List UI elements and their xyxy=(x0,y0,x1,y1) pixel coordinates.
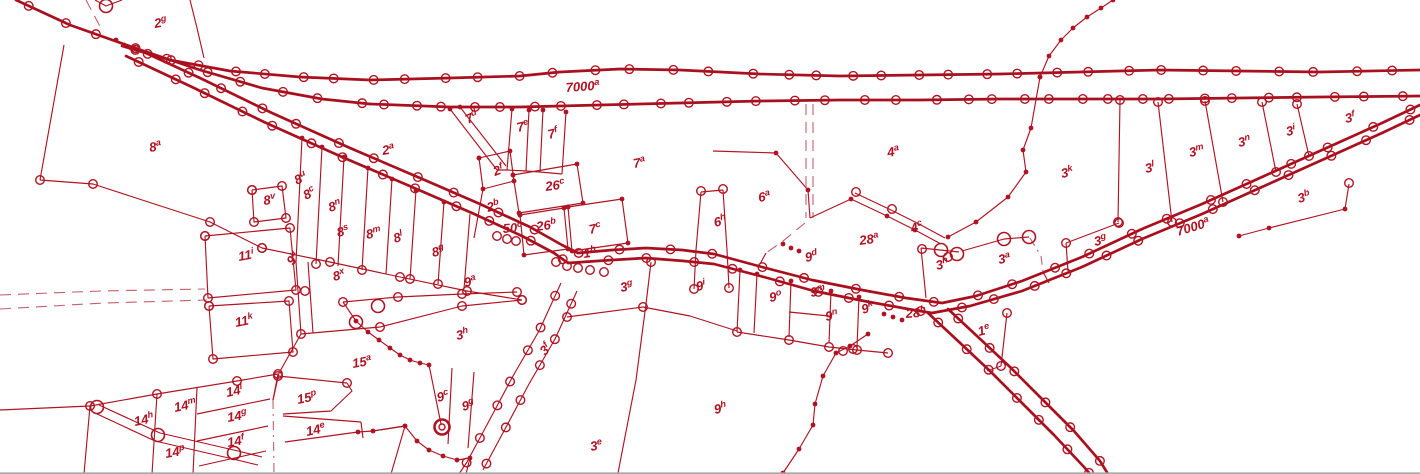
boundary-dot xyxy=(354,319,359,324)
boundary-dot xyxy=(789,246,794,251)
parcel-label-9a: 9a xyxy=(462,272,477,290)
parcel-boundary-line xyxy=(754,274,757,333)
parcel-boundary-line xyxy=(1118,100,1120,222)
parcel-boundary-line xyxy=(301,300,522,334)
parcel-label-9o: 9o xyxy=(768,287,784,305)
parcel-boundary-line xyxy=(0,289,205,295)
boundary-dot xyxy=(408,358,413,363)
boundary-dot xyxy=(448,107,453,112)
parcel-boundary-line xyxy=(152,394,157,474)
survey-point-marker xyxy=(852,188,861,197)
parcel-label-8x: 8x xyxy=(331,265,348,284)
parcel-label-14m: 14m xyxy=(172,395,197,415)
parcel-boundary-line xyxy=(783,334,868,473)
main-road-north-edge xyxy=(135,48,1420,303)
parcel-boundary-line xyxy=(776,153,810,218)
boundary-dot xyxy=(866,332,871,337)
parcel-boundary-line xyxy=(948,77,1040,237)
parcel-boundary-line xyxy=(361,422,363,438)
parcel-label-14g: 14g xyxy=(226,406,249,425)
parcel-boundary-line xyxy=(1297,104,1309,156)
parcel-boundary-line xyxy=(723,190,729,288)
parcel-label-3e: 3e xyxy=(589,436,604,454)
boundary-dot xyxy=(813,402,818,407)
parcel-label-7c: 7c xyxy=(587,219,602,237)
cadastral-map: 2g8a2a7d7e7f7000a7a4a3k3l3m3n3i3f8v8u8c8… xyxy=(0,0,1420,474)
parcel-label-15a: 15a xyxy=(351,352,373,371)
parcel-label-8l: 8l xyxy=(391,227,406,245)
parcel-label-9m: 9m xyxy=(809,282,827,300)
cadastral-map-canvas: 2g8a2a7d7e7f7000a7a4a3k3l3m3n3i3f8v8u8c8… xyxy=(0,0,1420,474)
parcel-boundary-line xyxy=(1001,313,1007,366)
boundary-dot xyxy=(797,447,802,452)
parcel-label-8a: 8a xyxy=(148,137,163,155)
parcel-boundary-line xyxy=(296,262,301,334)
survey-point-marker xyxy=(512,237,521,246)
parcel-label-11i: 11i xyxy=(237,245,256,264)
parcel-label-3h: 3h xyxy=(454,325,470,343)
boundary-dot xyxy=(1024,170,1029,175)
boundary-dot xyxy=(481,187,486,192)
boundary-dot xyxy=(1085,15,1090,20)
parcel-boundary-line xyxy=(373,426,405,431)
parcel-boundary-line xyxy=(338,157,344,266)
boundary-dot xyxy=(441,454,446,459)
boundary-dot xyxy=(900,318,905,323)
survey-point-marker xyxy=(600,268,609,277)
boundary-dot xyxy=(458,105,463,110)
parcel-boundary-line xyxy=(283,383,352,414)
parcel-label-15p: 15p xyxy=(295,387,318,407)
parcel-label-8s: 8s xyxy=(335,221,351,239)
parcel-label-9c: 9c xyxy=(435,386,451,404)
parcel-label-3i: 3i xyxy=(1284,121,1297,139)
parcel-boundary-line xyxy=(308,262,313,333)
parcel-boundary-line xyxy=(296,138,302,262)
parcel-boundary-line xyxy=(694,192,701,289)
parcel-label-14p: 14p xyxy=(164,442,187,461)
parcel-boundary-line xyxy=(766,223,805,253)
boundary-dot xyxy=(1267,226,1272,231)
road-edge-top xyxy=(122,46,1420,80)
parcel-label-2a: 2a xyxy=(380,140,396,158)
boundary-dot xyxy=(377,338,382,343)
survey-point-marker xyxy=(503,235,512,244)
boundary-dot xyxy=(620,197,625,202)
boundary-dot xyxy=(566,205,571,210)
well-symbol-inner xyxy=(439,424,445,430)
parcel-boundary-line xyxy=(713,151,776,153)
parcel-boundary-line xyxy=(40,45,64,180)
parcel-label-9h: 9h xyxy=(712,399,728,417)
parcel-label-8m: 8m xyxy=(364,223,382,242)
parcel-label-28b: 28b xyxy=(904,304,927,321)
boundary-dot xyxy=(882,312,887,317)
parcel-label-3a: 3a xyxy=(997,249,1012,267)
boundary-dot xyxy=(477,156,482,161)
survey-point-marker xyxy=(951,248,964,261)
boundary-dot xyxy=(366,330,371,335)
boundary-dot xyxy=(366,166,371,171)
parcel-label-14e: 14e xyxy=(304,419,326,439)
parcel-label-7000a: 7000a xyxy=(565,77,600,95)
parcel-boundary-line xyxy=(84,406,90,474)
parcel-label-6a: 6a xyxy=(757,187,772,205)
boundary-dot xyxy=(511,173,516,178)
parcel-boundary-line xyxy=(40,180,262,248)
branch-road-edge xyxy=(928,313,1090,474)
boundary-dot xyxy=(388,346,393,351)
parcel-boundary-line xyxy=(540,110,543,172)
boundary-dot xyxy=(891,315,896,320)
parcel-boundary-line xyxy=(737,270,740,332)
parcel-label-14l: 14l xyxy=(224,381,244,400)
boundary-dot xyxy=(415,439,420,444)
survey-point-marker xyxy=(493,232,502,241)
boundary-dot xyxy=(508,149,513,154)
survey-point-marker xyxy=(372,300,385,313)
boundary-dot xyxy=(1006,195,1011,200)
boundary-dot xyxy=(418,361,423,366)
parcel-boundary-line xyxy=(789,312,829,316)
boundary-dot xyxy=(946,235,951,240)
parcel-label-8v: 8v xyxy=(262,190,277,208)
boundary-dot xyxy=(626,241,631,246)
parcel-boundary-line xyxy=(190,0,204,58)
parcel-boundary-line xyxy=(1205,101,1223,202)
parcel-boundary-line xyxy=(810,199,851,218)
parcel-boundary-line xyxy=(386,179,392,274)
parcel-label-28a: 28a xyxy=(857,229,880,248)
parcel-label-7a: 7a xyxy=(632,153,647,171)
boundary-dot xyxy=(806,188,811,193)
parcel-label-3n: 3n xyxy=(1236,132,1252,150)
boundary-dot xyxy=(403,424,408,429)
parcel-boundary-line xyxy=(857,297,859,347)
boundary-dot xyxy=(1021,148,1026,153)
boundary-dot xyxy=(821,374,826,379)
parcel-label-14h: 14h xyxy=(132,409,155,429)
parcel-boundary-line xyxy=(567,307,643,317)
boundary-dot xyxy=(789,279,794,284)
boundary-dot xyxy=(300,136,305,141)
parcel-label-3m: 3m xyxy=(1187,141,1205,160)
survey-point-marker xyxy=(91,401,104,414)
boundary-dot xyxy=(581,201,586,206)
boundary-dot xyxy=(518,213,523,218)
parcel-label-2g: 2g xyxy=(152,13,169,31)
parcel-boundary-line xyxy=(562,112,566,174)
boundary-dot xyxy=(564,110,569,115)
parcel-boundary-line xyxy=(273,400,274,474)
parcel-label-11k: 11k xyxy=(233,310,255,330)
parcel-boundary-line xyxy=(0,406,90,410)
parcel-boundary-line xyxy=(1158,102,1172,222)
parcel-boundary-line xyxy=(459,283,561,474)
parcel-label-1b: 1b xyxy=(582,243,597,261)
parcel-boundary-line xyxy=(1262,102,1276,172)
parcel-boundary-line xyxy=(86,0,103,32)
parcel-label-4a: 4a xyxy=(885,142,901,160)
boundary-dot xyxy=(1029,126,1034,131)
parcel-label-3g: 3g xyxy=(619,277,635,295)
parcel-label-26b: 26b xyxy=(534,215,557,234)
boundary-dot xyxy=(541,108,546,113)
parcel-boundary-line xyxy=(643,307,737,331)
boundary-dot xyxy=(974,220,979,225)
boundary-dot xyxy=(371,429,376,434)
parcel-label-8g: 8g xyxy=(430,241,447,260)
boundary-dot xyxy=(857,295,862,300)
parcel-boundary-line xyxy=(343,302,356,321)
boundary-dot xyxy=(1237,234,1242,239)
parcel-boundary-line xyxy=(362,168,368,270)
boundary-dot xyxy=(1047,54,1052,59)
boundary-dot xyxy=(885,214,890,219)
survey-point-marker xyxy=(574,264,583,273)
boundary-dot xyxy=(781,242,786,247)
parcel-label-1e: 1e xyxy=(976,320,992,338)
boundary-dot xyxy=(510,107,515,112)
parcel-boundary-line xyxy=(1066,223,1119,243)
parcel-boundary-line xyxy=(410,190,416,279)
boundary-dot xyxy=(755,272,760,277)
boundary-dot xyxy=(1111,0,1116,2)
parcel-boundary-line xyxy=(405,426,470,460)
boundary-dot xyxy=(427,363,432,368)
boundary-dot xyxy=(829,289,834,294)
parcel-label-3b: 3b xyxy=(1295,187,1312,206)
boundary-dot xyxy=(512,179,517,184)
boundary-dot xyxy=(522,253,527,258)
parcel-label-3k: 3k xyxy=(1059,163,1075,181)
parcel-label-9i: 9i xyxy=(694,276,707,294)
parcel-label-9n: 9n xyxy=(824,306,840,324)
parcel-label-3l: 3l xyxy=(1143,158,1156,176)
parcel-label-6h: 6h xyxy=(712,211,729,230)
parcel-boundary-line xyxy=(316,147,322,264)
parcel-label-9u: 9u xyxy=(282,248,303,268)
branch-road-edge xyxy=(948,309,1108,474)
boundary-dot xyxy=(1038,75,1043,80)
parcel-label-26c: 26c xyxy=(543,175,566,194)
boundary-dot xyxy=(1343,207,1348,212)
boundary-dot xyxy=(390,177,395,182)
survey-point-marker xyxy=(586,266,595,275)
well-symbol xyxy=(435,420,450,435)
boundary-dot xyxy=(834,351,839,356)
boundary-dot xyxy=(1099,6,1104,11)
boundary-dot xyxy=(1071,26,1076,31)
parcel-boundary-line xyxy=(285,432,358,442)
parcel-label-3f: 3f xyxy=(1343,108,1357,126)
parcel-boundary-line xyxy=(278,376,347,383)
boundary-dot xyxy=(738,268,743,273)
parcel-label-9d: 9d xyxy=(803,247,819,265)
parcel-boundary-line xyxy=(205,228,296,298)
boundary-dot xyxy=(575,162,580,167)
parcel-boundary-line xyxy=(789,281,791,337)
parcel-boundary-line xyxy=(1239,209,1345,236)
parcel-boundary-line xyxy=(921,248,926,298)
parcel-boundary-line xyxy=(962,237,1029,251)
parcel-labels-layer: 2g8a2a7d7e7f7000a7a4a3k3l3m3n3i3f8v8u8c8… xyxy=(132,13,1357,461)
boundary-dot xyxy=(1059,38,1064,43)
parcel-boundary-line xyxy=(450,109,497,170)
parcel-label-7f: 7f xyxy=(546,124,561,142)
boundary-dot xyxy=(774,151,779,156)
boundary-dot xyxy=(849,197,854,202)
parcel-boundary-line xyxy=(856,192,892,209)
parcel-label-9g: 9g xyxy=(460,395,477,414)
boundary-dot xyxy=(811,423,816,428)
parcel-boundary-line xyxy=(356,306,378,322)
parcel-boundary-line xyxy=(1040,0,1113,77)
parcel-boundary-line xyxy=(391,426,405,474)
parcel-label-8c: 8c xyxy=(300,183,318,203)
boundary-dot xyxy=(797,249,802,254)
boundary-dot xyxy=(427,448,432,453)
parcel-label-50c: 50c xyxy=(502,219,523,236)
boundary-dot xyxy=(442,200,447,205)
boundary-dot xyxy=(114,38,119,43)
parcel-boundary-line xyxy=(0,300,207,309)
boundary-dot xyxy=(320,145,325,150)
boundary-dot xyxy=(122,43,127,48)
boundary-dot xyxy=(356,430,361,435)
boundary-dot xyxy=(455,458,460,463)
survey-point-marker xyxy=(301,287,310,296)
parcel-label-14f: 14f xyxy=(226,431,247,450)
boundary-dot xyxy=(398,353,403,358)
survey-point-marker xyxy=(152,429,165,442)
parcel-boundary-line xyxy=(343,292,517,302)
boundary-dot xyxy=(562,206,567,211)
parcel-label-3h: 3h xyxy=(934,254,951,273)
